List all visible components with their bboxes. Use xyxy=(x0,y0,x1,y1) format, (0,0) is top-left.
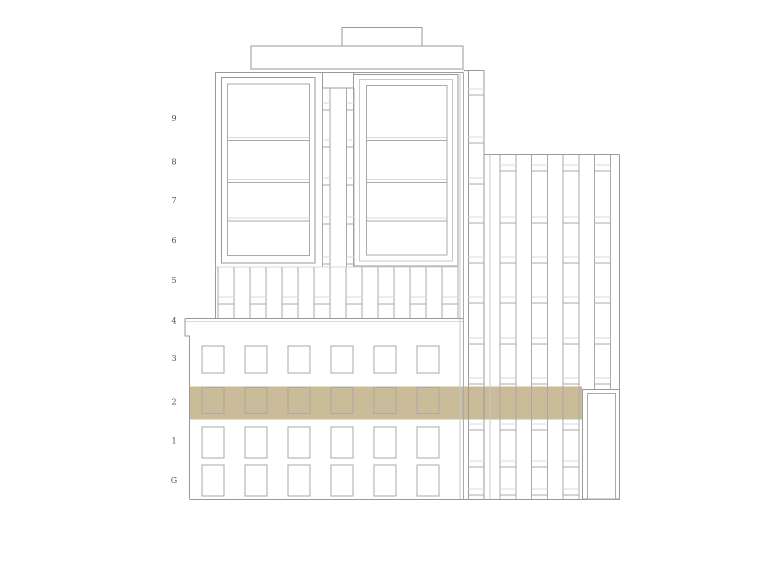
right-panel-midframe xyxy=(360,80,453,262)
floor-label-2: 2 xyxy=(171,398,176,407)
floor-label-5: 5 xyxy=(171,276,176,285)
window xyxy=(331,427,353,458)
building-elevation-drawing: 987654321G xyxy=(0,0,776,576)
window xyxy=(202,465,224,496)
floor-labels: 987654321G xyxy=(171,114,177,485)
left-panel-frame xyxy=(222,78,316,264)
curtainwall-strip xyxy=(464,71,485,500)
drawing-page: 987654321G xyxy=(0,0,776,576)
window xyxy=(374,465,396,496)
window xyxy=(331,465,353,496)
left-panel-glass xyxy=(228,84,310,256)
highlight-band xyxy=(189,387,582,420)
floor2-highlight-band xyxy=(189,387,582,420)
floor-label-1: 1 xyxy=(171,437,176,446)
floor-label-4: 4 xyxy=(171,317,176,326)
floor-label-8: 8 xyxy=(171,158,176,167)
entrance-core xyxy=(583,390,620,500)
window xyxy=(417,346,439,373)
window xyxy=(374,427,396,458)
floor-label-9: 9 xyxy=(171,114,176,123)
podium-outline xyxy=(185,319,190,500)
window xyxy=(245,427,267,458)
roof-mechanical-level xyxy=(251,46,463,69)
center-mullion-cap xyxy=(323,73,354,89)
window xyxy=(417,427,439,458)
upper-tower-block xyxy=(185,73,464,500)
floor-label-3: 3 xyxy=(171,354,176,363)
window xyxy=(374,346,396,373)
floor-label-g: G xyxy=(171,476,177,485)
window xyxy=(417,465,439,496)
right-panel-frame xyxy=(354,75,459,267)
floor-label-7: 7 xyxy=(171,196,176,205)
window xyxy=(288,465,310,496)
right-panel-glass xyxy=(367,86,448,256)
floor-label-6: 6 xyxy=(171,236,176,245)
window xyxy=(245,465,267,496)
window xyxy=(288,346,310,373)
roof-penthouse xyxy=(342,28,422,47)
window xyxy=(288,427,310,458)
window xyxy=(202,427,224,458)
window xyxy=(331,346,353,373)
rooftop-structures xyxy=(251,28,463,70)
window xyxy=(245,346,267,373)
window xyxy=(202,346,224,373)
core-inner-frame xyxy=(588,394,616,500)
